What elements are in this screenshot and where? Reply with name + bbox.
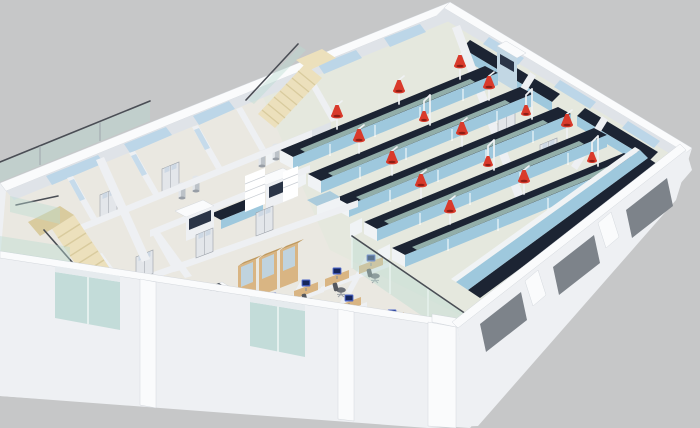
pilaster (338, 309, 354, 421)
floorplan-render (0, 0, 700, 428)
render-canvas (0, 0, 700, 428)
corner-pilaster (428, 322, 456, 428)
pilaster (140, 279, 156, 408)
